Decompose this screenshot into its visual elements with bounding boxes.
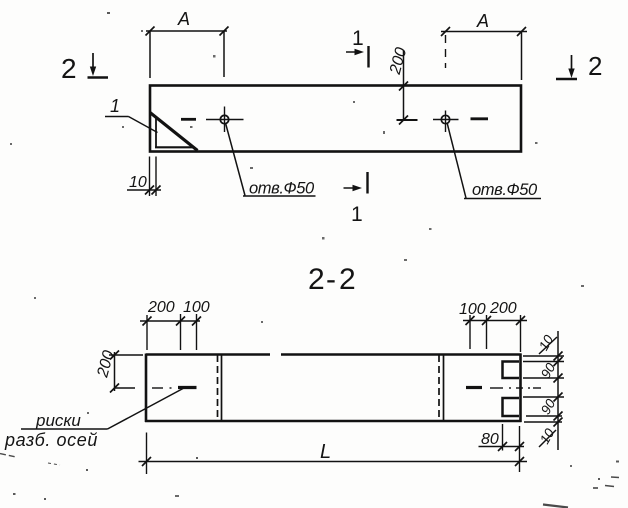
svg-text:А: А — [476, 11, 489, 31]
svg-text:10: 10 — [129, 174, 147, 191]
svg-text:1: 1 — [110, 96, 120, 116]
svg-text:1: 1 — [351, 203, 363, 226]
svg-text:2: 2 — [61, 53, 77, 84]
svg-text:отв.Ф50: отв.Ф50 — [472, 181, 538, 199]
svg-text:100: 100 — [459, 301, 486, 318]
svg-text:L: L — [320, 441, 331, 463]
svg-text:2-2: 2-2 — [308, 263, 356, 296]
svg-text:2: 2 — [588, 51, 602, 81]
svg-text:200: 200 — [147, 299, 175, 316]
svg-text:риски: риски — [35, 411, 81, 430]
svg-text:отв.Ф50: отв.Ф50 — [249, 180, 315, 198]
svg-text:200: 200 — [489, 300, 517, 317]
svg-text:80: 80 — [481, 431, 499, 448]
svg-text:100: 100 — [183, 299, 210, 316]
svg-text:1: 1 — [352, 27, 364, 50]
svg-text:разб. осей: разб. осей — [4, 430, 98, 450]
svg-text:А: А — [177, 9, 190, 29]
